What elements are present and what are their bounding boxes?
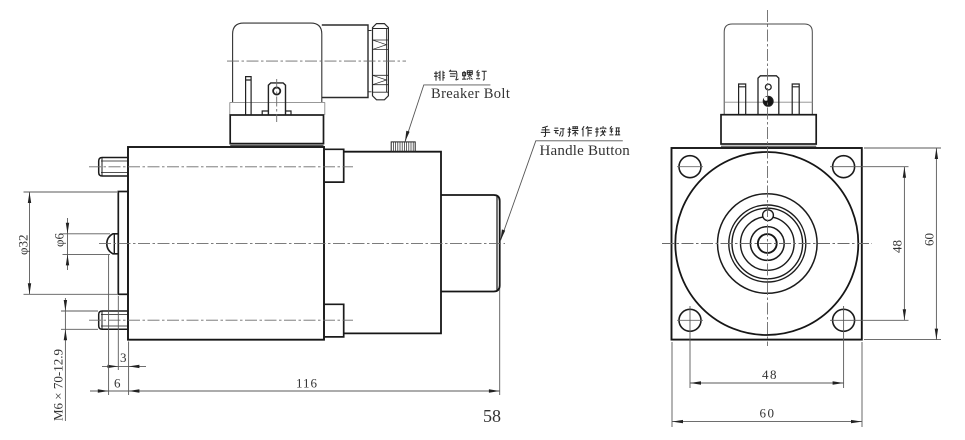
svg-text:116: 116 xyxy=(296,376,318,391)
svg-text:φ6: φ6 xyxy=(52,232,67,247)
svg-text:60: 60 xyxy=(760,406,776,421)
svg-text:3: 3 xyxy=(120,350,127,365)
svg-text:48: 48 xyxy=(890,240,905,253)
svg-text:48: 48 xyxy=(762,367,778,382)
svg-text:φ32: φ32 xyxy=(16,234,31,255)
svg-text:Handle Button: Handle Button xyxy=(540,143,631,159)
svg-text:58: 58 xyxy=(483,406,501,426)
svg-text:M6 × 70-12.9: M6 × 70-12.9 xyxy=(51,349,66,421)
svg-text:Breaker Bolt: Breaker Bolt xyxy=(431,86,510,102)
svg-text:60: 60 xyxy=(922,233,937,246)
svg-text:6: 6 xyxy=(114,376,121,391)
